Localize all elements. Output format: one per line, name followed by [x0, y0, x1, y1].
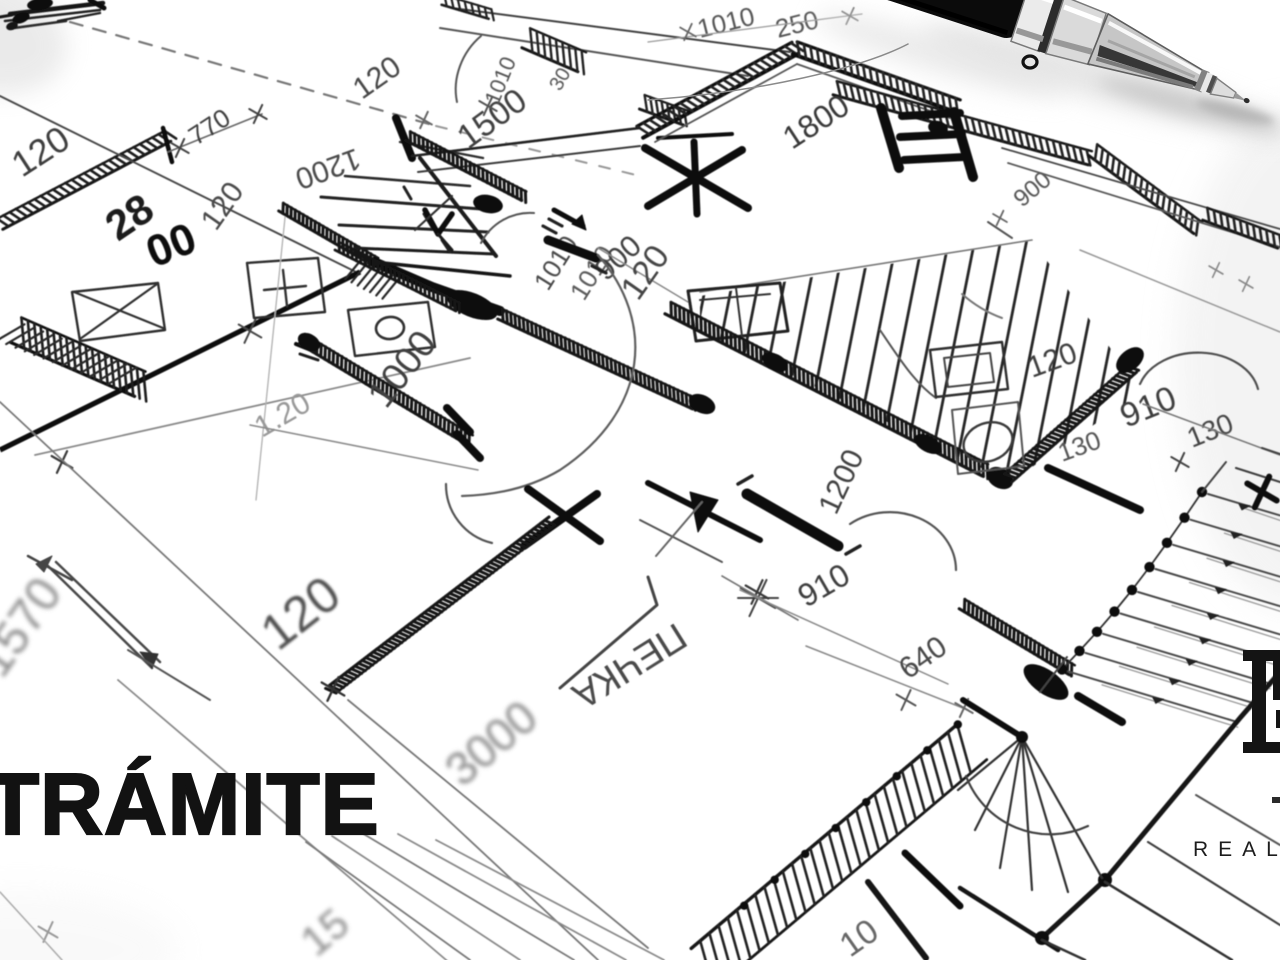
svg-text:REAL: REAL [1193, 838, 1280, 861]
svg-text:TRÁMITE: TRÁMITE [0, 756, 380, 853]
